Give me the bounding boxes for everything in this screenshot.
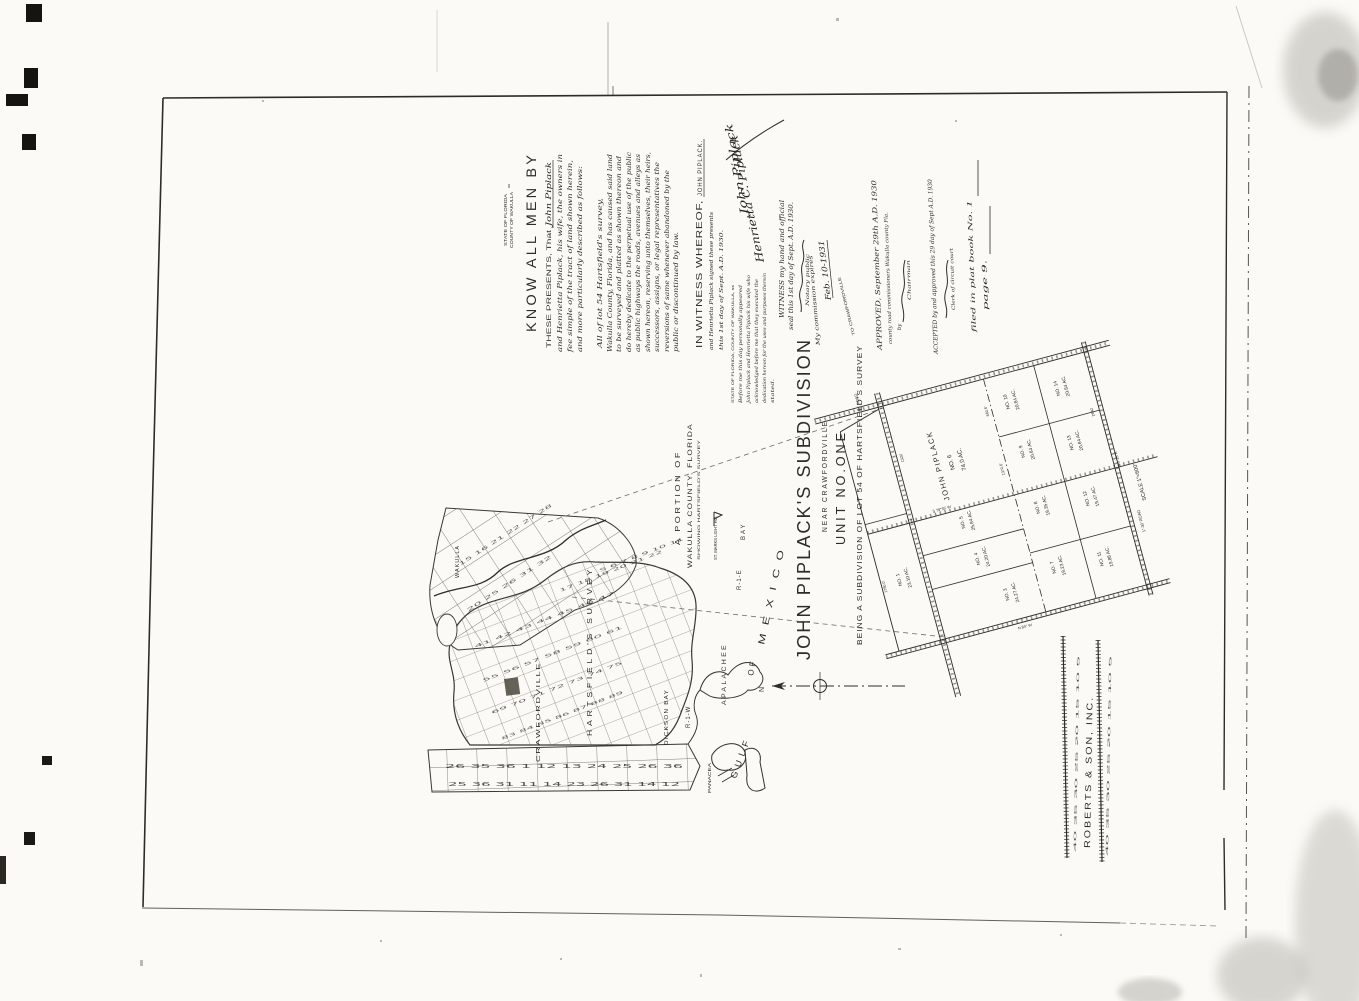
deed-line: and more particularly described as follo… xyxy=(577,166,584,352)
deed-body-line: as public highways the roads, avenues an… xyxy=(635,154,642,352)
approved-line: APPROVED, September 29th A.D. 1930 xyxy=(870,179,884,351)
film-edge-mark xyxy=(22,134,36,150)
subdivision-plat: JOHN PIPLACK NO. 6 74.0 AC. NO. 5 25.84 … xyxy=(810,322,1204,714)
film-edge-mark xyxy=(24,68,38,88)
map-label-apal: APALACHEE xyxy=(722,643,728,705)
lot-number: NO. 5 xyxy=(958,515,967,529)
map-label-mexico: MEXICO xyxy=(756,541,788,646)
jurat-line: acknowledged before me that they execute… xyxy=(754,279,760,403)
board-line: county road commissioners Wakulla county… xyxy=(883,212,894,345)
film-edge-mark xyxy=(42,756,52,765)
lot-number: NO. 10 xyxy=(1002,393,1012,410)
lot-area: 20.84 AC. xyxy=(1060,375,1071,397)
map-label-dickson-bay: DICKSON BAY xyxy=(664,689,670,745)
map-label-r1w: R-1-W xyxy=(686,706,692,728)
lot-area: 19.47 AC. xyxy=(1090,485,1101,507)
lot-area: 23.10 AC. xyxy=(903,566,914,588)
road-bottom-hatch xyxy=(886,581,1170,657)
lot-number: NO. 3 xyxy=(1002,587,1011,601)
chairman-signature-scribble xyxy=(902,260,905,322)
seal-line: WITNESS my hand and official xyxy=(779,200,786,318)
venue-state: STATE OF FLORIDA xyxy=(503,194,508,246)
border-right xyxy=(1224,92,1227,910)
lot-area: 74.0 AC. xyxy=(957,447,969,471)
grid-numbers: 25 36 31 11 14 23 26 31 14 12 xyxy=(448,782,680,788)
crease-line xyxy=(1236,6,1262,88)
scale-bar-numbers: 40 35 30 25 20 15 10 5 xyxy=(1073,656,1080,852)
grid-numbers: 26 35 36 1 12 13 24 25 26 36 xyxy=(445,764,683,770)
lot-number: NO. 11 xyxy=(1096,551,1106,567)
by-label: by xyxy=(897,324,903,331)
scanned-plat-sheet: STATE OF FLORIDA COUNTY OF WAKULLA ss KN… xyxy=(0,0,1359,1001)
lot-number: NO. 13 xyxy=(1066,434,1076,451)
dedication-block: STATE OF FLORIDA COUNTY OF WAKULLA ss KN… xyxy=(503,120,833,404)
lot-area: 19.88 AC. xyxy=(1104,546,1115,568)
owner-signature-2: Henrietta C. Piplack xyxy=(728,135,767,265)
deed-body-line: shown hereon, reserving unto themselves,… xyxy=(645,152,652,352)
road-note: TO CRAWFORDVILLE xyxy=(836,276,855,336)
map-label-hartsfield: HARTSFIELD'S SURVEY xyxy=(587,566,594,736)
deed-body-line: Wakulla County, Florida, and has caused … xyxy=(607,154,614,352)
presents-name: John Piplack xyxy=(545,162,553,229)
venue-ss: ss xyxy=(506,184,511,188)
lot-number: NO. 8 xyxy=(1033,500,1042,514)
film-edge-mark xyxy=(0,856,6,884)
film-edge-mark xyxy=(24,832,35,845)
north-label: N xyxy=(759,687,766,692)
dimension-label: 1320' xyxy=(899,453,905,463)
lot-area: 24.20 AC. xyxy=(981,545,992,567)
scan-smudge xyxy=(1118,978,1182,1001)
lot-area: 20.84 AC. xyxy=(1074,429,1085,451)
map-label-r1e: R-1-E xyxy=(737,569,743,590)
title-unit: UNIT NO.ONE xyxy=(833,430,848,545)
jurat-line: stated. xyxy=(770,378,776,403)
map-label-wakulla: WAKULLA xyxy=(455,545,461,578)
bearing-label: S 6°25' E xyxy=(1114,450,1122,467)
plat-annotations: 1320' 660.6' 1370.6' 1780.0' 2640' S 6°2… xyxy=(833,328,1173,662)
venue-county: COUNTY OF WAKULLA xyxy=(509,192,514,248)
border-top xyxy=(163,92,1227,98)
map-label-st-marks: ST. MARKS LIGHT HO. xyxy=(713,516,718,560)
map-label-crawfordville: CRAWFORDVILLE xyxy=(536,662,542,762)
clerk-signature-scribble xyxy=(945,260,948,318)
lot-number: NO. 14 xyxy=(1052,380,1062,397)
jurat-line: John Piplack and Henrietta Piplack his w… xyxy=(746,275,752,404)
plat-roads xyxy=(812,327,1204,714)
scale-bar-line xyxy=(1063,636,1067,858)
border-bottom-faded xyxy=(1120,923,1218,926)
title-subtitle: NEAR CRAWFORDVILLE xyxy=(822,420,829,532)
lot-number: NO. 4 xyxy=(973,552,982,566)
presents-line: THESE PRESENTS, That xyxy=(546,230,553,348)
border-left xyxy=(143,98,163,907)
seal-line: seal this 1st day of Sept. A.D. 1930. xyxy=(788,202,795,330)
lake-outline xyxy=(437,614,457,646)
dimension-label: 1370.6' xyxy=(999,463,1006,476)
peninsula-outline xyxy=(745,748,765,791)
lot-area: 25.84 AC. xyxy=(966,509,977,531)
surveyor-name: ROBERTS & SON, INC. xyxy=(1082,696,1095,848)
surveyor-block: 40 35 30 25 20 15 10 5 ROBERTS & SON, IN… xyxy=(1063,636,1112,862)
commission-date: Feb. 10-1931 xyxy=(817,240,833,301)
deed-heading: KNOW ALL MEN BY xyxy=(523,152,539,332)
dimension-label: 2640' xyxy=(1089,407,1095,417)
scale-bar-line xyxy=(1098,640,1102,862)
lot-area: 19.23 AC. xyxy=(1057,554,1068,576)
scan-smudge xyxy=(1318,49,1358,101)
map-caption-2: WAKULLA COUNTY, FLORIDA xyxy=(687,423,694,568)
witness-name: JOHN PIPLACK. xyxy=(697,140,704,196)
clerk-label: Clerk of circuit court xyxy=(949,248,957,310)
deed-line: fee simple of the tract of land shown he… xyxy=(567,160,574,354)
parcel-intro: All of lot 54 Hartsfield's survey, xyxy=(597,198,604,350)
lot-number: NO. 7 xyxy=(1049,560,1058,574)
scale-bar-numbers: 40 35 30 25 20 15 10 5 xyxy=(1105,656,1112,856)
lot-area: 24.27 AC. xyxy=(1010,581,1021,603)
map-caption-1: A PORTION OF xyxy=(675,450,682,545)
border-bottom xyxy=(142,908,1120,923)
road-middle-hatch xyxy=(867,455,1157,533)
road-right-hatch xyxy=(1083,342,1151,595)
deed-body-line: do hereby dedicate to the perpetual use … xyxy=(626,151,633,352)
witness-line: and Henrietta Piplack signed these prese… xyxy=(709,212,715,350)
title-being-line: BEING A SUBDIVISION OF LOT 54 OF HARTSFI… xyxy=(855,345,864,645)
lot-number: NO. 6 xyxy=(947,453,957,470)
deed-body-line: successors, assigns, or legal representa… xyxy=(654,161,661,352)
jurat-venue: STATE OF FLORIDA, COUNTY OF WAKULLA, ss xyxy=(730,285,735,403)
plat-drawing: STATE OF FLORIDA COUNTY OF WAKULLA ss KN… xyxy=(0,0,1359,1001)
lot-area: 19.35 AC. xyxy=(1041,494,1052,516)
road-middle xyxy=(868,457,1158,535)
north-arrow: N xyxy=(759,672,905,700)
section-line xyxy=(983,379,1045,612)
paper-specks xyxy=(140,18,1062,977)
deed-body-line: public or discontinued by law. xyxy=(673,232,680,352)
dimension-label: 660.6' xyxy=(984,406,991,417)
lot-number: NO. 1 xyxy=(895,572,904,586)
lot-owner: JOHN PIPLACK xyxy=(924,430,951,502)
deed-body-line: reversions of same whenever abandoned by… xyxy=(664,169,671,352)
overview-map: 41 42 43 44 45 46 47 55 56 57 58 59 60 6… xyxy=(428,423,788,793)
map-label-panacea: PANACEA xyxy=(707,763,712,793)
page-title: JOHN PIPLACK'S SUBDIVISION xyxy=(794,338,814,660)
lot-area: 20.84 AC. xyxy=(1010,388,1021,410)
crawfordville-town-square xyxy=(504,677,520,696)
jurat-line: Before me this day personally appeared xyxy=(738,285,744,404)
lot-area: 20.84 AC. xyxy=(1026,438,1037,460)
strip-outer-line xyxy=(840,432,899,651)
map-label-bay: BAY xyxy=(741,522,747,540)
road-left-hatch xyxy=(877,393,958,696)
jurat-line: dedication hereon for the uses and purpo… xyxy=(762,273,768,403)
approval-block: APPROVED, September 29th A.D. 1930 count… xyxy=(870,160,990,355)
deed-line: and Henrietta Piplack, his wife, the own… xyxy=(557,154,564,352)
film-edge-mark xyxy=(26,4,42,22)
chairman-label: Chairman xyxy=(906,260,913,300)
dimension-label: 1780.0' xyxy=(881,580,888,593)
filed-line: filed in plat book No. 1 xyxy=(966,200,978,334)
plat-scale-note: SCALE 1"=600' xyxy=(1133,463,1149,501)
margin-dash-dot-line xyxy=(1246,86,1249,938)
lot-number: NO. 9 xyxy=(1018,444,1027,458)
strip-row-line xyxy=(865,514,907,525)
witness-line: this 1st day of Sept. A.D. 1930. xyxy=(719,230,725,350)
bearing-label: N 84° W xyxy=(1018,623,1033,631)
road-name: 1"-30' ROAD xyxy=(1136,509,1147,532)
film-edge-mark xyxy=(6,94,28,106)
scan-smudge xyxy=(1217,937,1307,1001)
page-line: page 9. xyxy=(980,260,990,310)
notary-signature-scribble xyxy=(800,240,804,312)
witness-heading: IN WITNESS WHEREOF, xyxy=(694,200,704,348)
map-caption-3: SHOWING HARTSFIELD'S SURVEY xyxy=(696,439,701,560)
deed-body-line: to be surveyed and platted as shown ther… xyxy=(616,156,623,352)
accepted-line: ACCEPTED by and approved this 29 day of … xyxy=(927,179,940,355)
lot-number: NO. 12 xyxy=(1082,490,1092,507)
